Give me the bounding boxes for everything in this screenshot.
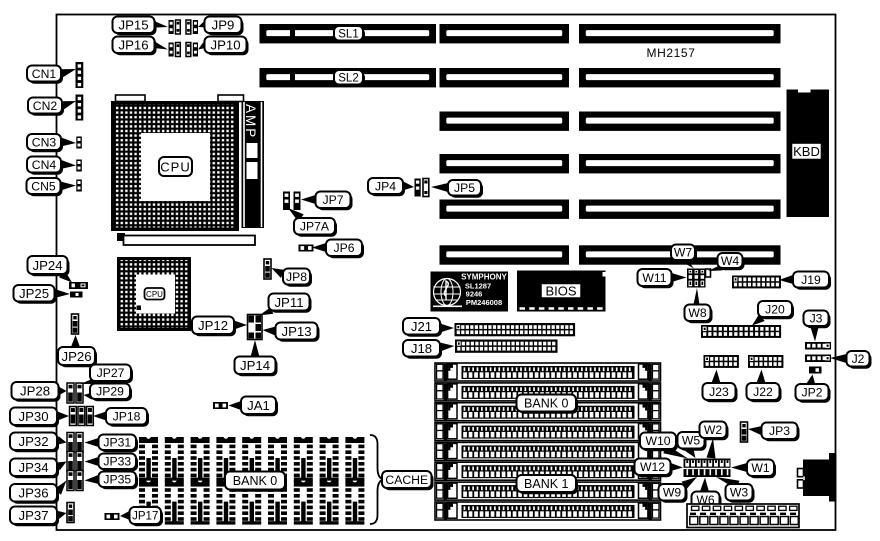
svg-text:JP30: JP30 (18, 409, 48, 424)
svg-text:JP2: JP2 (801, 386, 822, 400)
svg-text:J18: J18 (411, 341, 432, 356)
svg-text:J3: J3 (810, 312, 823, 326)
svg-text:AMP: AMP (243, 104, 258, 139)
svg-text:J2: J2 (852, 352, 865, 366)
svg-text:W11: W11 (642, 271, 666, 285)
svg-text:JP31: JP31 (103, 436, 131, 450)
svg-text:JP7: JP7 (322, 193, 343, 207)
svg-text:CPU: CPU (146, 290, 163, 299)
svg-text:JP11: JP11 (274, 295, 303, 310)
svg-text:CN2: CN2 (33, 99, 58, 113)
svg-text:JP27: JP27 (97, 366, 125, 380)
svg-text:MH2157: MH2157 (647, 46, 696, 60)
svg-text:JP10: JP10 (210, 38, 240, 53)
svg-text:JP4: JP4 (375, 179, 396, 193)
svg-text:JP7A: JP7A (300, 220, 330, 234)
svg-text:JP9: JP9 (212, 18, 235, 33)
svg-text:W2: W2 (704, 423, 723, 437)
svg-text:JA1: JA1 (247, 398, 270, 413)
svg-text:JP24: JP24 (32, 258, 62, 273)
svg-text:JP37: JP37 (18, 508, 48, 523)
svg-text:JP18: JP18 (113, 410, 141, 424)
svg-text:J21: J21 (411, 319, 432, 334)
svg-text:JP33: JP33 (103, 455, 131, 469)
svg-text:KBD: KBD (793, 144, 820, 159)
svg-text:JP34: JP34 (18, 460, 48, 475)
svg-text:JP16: JP16 (118, 38, 148, 53)
svg-text:J23: J23 (709, 385, 729, 399)
svg-text:W5: W5 (682, 434, 701, 448)
svg-text:JP32: JP32 (18, 434, 48, 449)
svg-text:BANK 0: BANK 0 (233, 474, 278, 488)
svg-text:JP8: JP8 (286, 270, 307, 284)
svg-text:JP14: JP14 (240, 358, 270, 373)
svg-text:JP6: JP6 (333, 241, 354, 255)
svg-text:JP13: JP13 (281, 324, 311, 339)
svg-text:W9: W9 (663, 486, 682, 500)
svg-text:CPU: CPU (160, 160, 190, 175)
svg-text:JP15: JP15 (118, 18, 148, 33)
svg-text:BANK 1: BANK 1 (524, 477, 569, 491)
svg-text:JP28: JP28 (20, 384, 50, 399)
svg-text:W12: W12 (640, 460, 665, 474)
svg-text:CN5: CN5 (31, 179, 56, 193)
svg-text:J19: J19 (801, 273, 821, 287)
svg-text:JP35: JP35 (103, 473, 131, 487)
svg-text:J20: J20 (765, 302, 785, 316)
svg-text:BANK 0: BANK 0 (524, 397, 569, 411)
svg-text:W4: W4 (721, 254, 740, 268)
svg-text:W10: W10 (645, 434, 670, 448)
svg-text:JP17: JP17 (132, 511, 158, 523)
svg-text:CN1: CN1 (32, 67, 57, 81)
svg-text:CACHE: CACHE (385, 473, 428, 487)
svg-text:PM246008: PM246008 (466, 298, 502, 307)
svg-text:SYMPHONY: SYMPHONY (461, 273, 507, 282)
svg-text:JP29: JP29 (96, 385, 124, 399)
svg-text:CN4: CN4 (32, 158, 57, 172)
svg-text:W3: W3 (730, 486, 749, 500)
svg-text:BIOS: BIOS (545, 284, 576, 299)
svg-text:W1: W1 (751, 461, 770, 475)
svg-text:SL2: SL2 (338, 72, 358, 84)
svg-text:J22: J22 (753, 385, 773, 399)
svg-text:JP25: JP25 (19, 286, 49, 301)
svg-text:JP5: JP5 (454, 181, 475, 195)
svg-text:JP12: JP12 (198, 318, 228, 333)
svg-text:W7: W7 (674, 246, 693, 260)
svg-text:JP3: JP3 (769, 424, 790, 438)
svg-text:W8: W8 (688, 306, 707, 320)
svg-text:CN3: CN3 (32, 135, 57, 149)
svg-text:JP26: JP26 (61, 349, 91, 364)
svg-text:SL1: SL1 (338, 28, 358, 40)
svg-text:JP36: JP36 (18, 486, 48, 501)
